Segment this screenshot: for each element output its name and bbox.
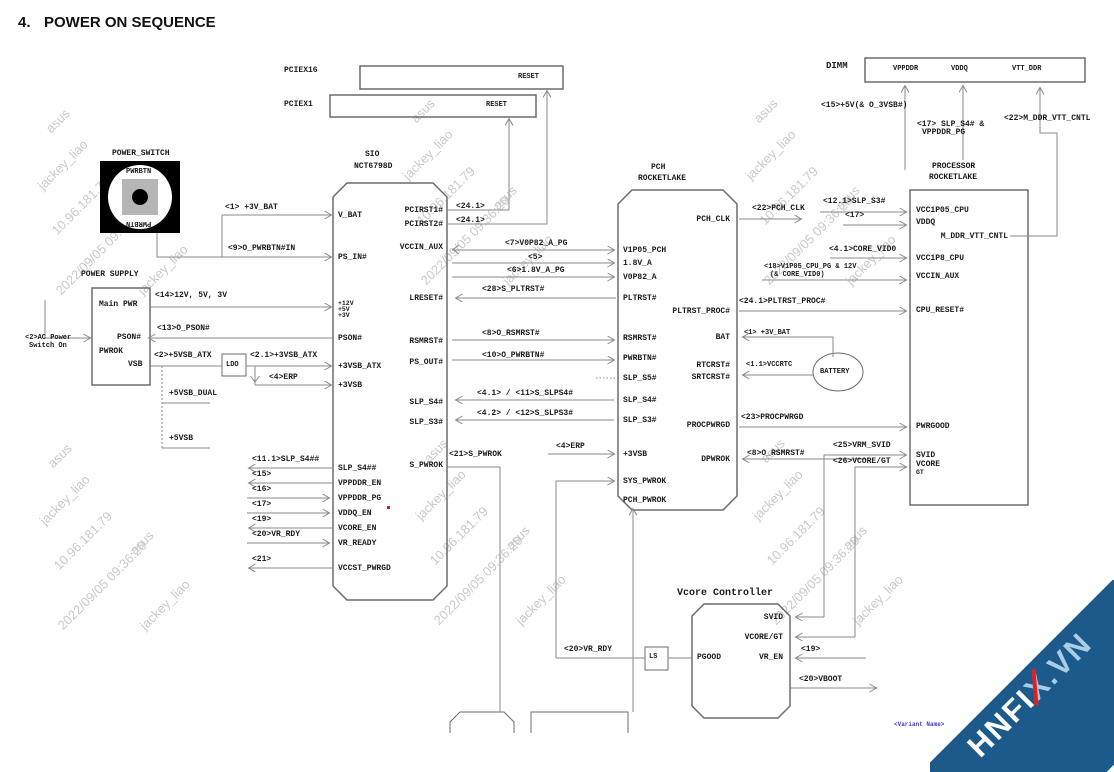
pch-pin-dpwrok: DPWROK	[701, 455, 730, 464]
sio-pin-pcirst1: PCIRST1#	[405, 206, 443, 215]
pch-pin-pch-clk: PCH_CLK	[696, 215, 730, 224]
sio-pin-slp-s4: SLP_S4#	[409, 398, 443, 407]
cpu-pin-vcc1p8: VCC1P8_CPU	[916, 254, 964, 263]
signal-5vsb: +5VSB	[169, 434, 193, 443]
psu-pin-pwrok: PWROK	[99, 347, 123, 356]
cpu-pin-cpu-reset: CPU_RESET#	[916, 306, 964, 315]
signal-ac-power-2: Switch On	[29, 342, 67, 350]
cpu-pin-vddq: VDDQ	[916, 218, 935, 227]
dimm-label: DIMM	[826, 61, 848, 71]
ls-label: LS	[649, 653, 657, 661]
pch-pin-sys-pwrok: SYS_PWROK	[623, 477, 666, 486]
pch-pin-v1p05: V1P05_PCH	[623, 246, 666, 255]
signal-core-vid0: <4.1>CORE_VID0	[829, 245, 896, 254]
signal-v0p82-pg: <7>V0P82_A_PG	[505, 239, 567, 248]
pch-pin-procpwrgd: PROCPWRGD	[687, 421, 730, 430]
signal-o-pson: <13>O_PSON#	[157, 324, 210, 333]
section-number: 4.	[18, 14, 31, 31]
red-marker	[387, 506, 390, 509]
sio-pin-s-pwrok: S_PWROK	[409, 461, 443, 470]
signal-main-rails: <14>12V, 5V, 3V	[155, 291, 227, 300]
vcore-title: Vcore Controller	[677, 588, 773, 600]
pch-pin-slp-s3: SLP_S3#	[623, 416, 657, 425]
signal-ref19: <19>	[252, 515, 271, 524]
vcore-pin-pgood: PGOOD	[697, 653, 721, 662]
signal-slp-s4dd: <11.1>SLP_S4##	[252, 455, 319, 464]
signal-s-pltrst: <28>S_PLTRST#	[482, 285, 544, 294]
signal-pltrst-proc: <24.1>PLTRST_PROC#	[739, 297, 825, 306]
signal-5vsb-atx: <2>+5VSB_ATX	[154, 351, 212, 360]
signal-vcore-gt: <26>VCORE/GT	[833, 457, 891, 466]
dimm-pin-vddq: VDDQ	[951, 65, 968, 73]
pch-pin-pwrbtn: PWRBTN#	[623, 354, 657, 363]
sio-pin-pcirst2: PCIRST2#	[405, 220, 443, 229]
signal-ref5: <5>	[528, 253, 542, 262]
battery-label: BATTERY	[820, 368, 849, 376]
pch-subtitle: ROCKETLAKE	[638, 174, 686, 183]
power-switch-button	[132, 189, 148, 205]
page-title: POWER ON SEQUENCE	[44, 14, 216, 31]
pch-pin-rsmrst: RSMRST#	[623, 334, 657, 343]
cpu-pin-pwrgood: PWRGOOD	[916, 422, 950, 431]
pciex16-reset-pin: RESET	[518, 73, 539, 81]
sio-pin-vr-ready: VR_READY	[338, 539, 376, 548]
signal-s-slps4: <4.1> / <11>S_SLPS4#	[477, 389, 573, 398]
sio-pin-3vsb: +3VSB	[338, 381, 362, 390]
vcore-pin-vr-en: VR_EN	[759, 653, 783, 662]
sio-pin-lreset: LRESET#	[409, 294, 443, 303]
signal-3v-bat: <1> +3V_BAT	[225, 203, 278, 212]
signal-cpu-pg-2: (& CORE_VID0)	[770, 271, 825, 279]
pch-pin-srtcrst: SRTCRST#	[692, 373, 730, 382]
pch-pin-bat: BAT	[716, 333, 730, 342]
cpu-pin-mddr-vtt-cntl: M_DDR_VTT_CNTL	[941, 232, 1008, 241]
pciex1-reset-pin: RESET	[486, 101, 507, 109]
sio-pin-slp-s4dd: SLP_S4##	[338, 464, 376, 473]
signal-mddr-vtt-cntl: <22>M_DDR_VTT_CNTL	[1004, 114, 1090, 123]
sio-pin-3v: +3V	[338, 312, 350, 319]
signal-dimm-vddq-2: VPPDDR_PG	[922, 128, 965, 137]
sio-pin-v-bat: V_BAT	[338, 211, 362, 220]
signal-vr-rdy: <20>VR_RDY	[252, 530, 300, 539]
signal-dimm-5v: <15>+5V(& O_3VSB#)	[821, 101, 907, 110]
cpu-title: PROCESSOR	[932, 162, 975, 171]
wires	[45, 86, 1057, 712]
sio-pin-3vsb-atx: +3VSB_ATX	[338, 362, 381, 371]
pciex1-label: PCIEX1	[284, 100, 313, 109]
power-switch-title: POWER_SWITCH	[112, 149, 170, 158]
cpu-pin-vcc1p05: VCC1P05_CPU	[916, 206, 969, 215]
signal-pcirst2-ref: <24.1>	[456, 216, 485, 225]
pch-title: PCH	[651, 163, 665, 172]
sio-pin-ps-out: PS_OUT#	[409, 358, 443, 367]
vcore-pin-svid: SVID	[764, 613, 783, 622]
ldo-label: LDO	[226, 361, 239, 369]
signal-s-pwrok: <21>S_PWROK	[449, 450, 502, 459]
dimm-pin-vtt-ddr: VTT_DDR	[1012, 65, 1041, 73]
sio-part-number: NCT6798D	[354, 162, 392, 171]
signal-erp-pch: <4>ERP	[556, 442, 585, 451]
pch-pin-pltrst-proc: PLTRST_PROC#	[672, 307, 730, 316]
signal-ref17-cpu: <17>	[845, 211, 864, 220]
pch-pin-pltrst: PLTRST#	[623, 294, 657, 303]
signal-o-pwrbtn: <10>O_PWRBTN#	[482, 351, 544, 360]
signal-o-rsmrst: <8>O_RSMRST#	[482, 329, 540, 338]
signal-ref16: <16>	[252, 485, 271, 494]
sio-pin-vcore-en: VCORE_EN	[338, 524, 376, 533]
psu-pin-vsb: VSB	[128, 360, 142, 369]
power-on-sequence-schematic: asusjackey_liao10.96.181.792022/09/05 09…	[0, 0, 1114, 772]
power-switch-btn-label: PWRBTN	[126, 168, 151, 176]
pch-pin-slp-s4: SLP_S4#	[623, 396, 657, 405]
pch-pin-pch-pwrok: PCH_PWROK	[623, 496, 666, 505]
sio-title: SIO	[365, 150, 379, 159]
signal-vboot: <20>VBOOT	[799, 675, 842, 684]
signal-5vsb-dual: +5VSB_DUAL	[169, 389, 217, 398]
cpu-subtitle: ROCKETLAKE	[929, 173, 977, 182]
hnfix-banner: HNFIX.VN	[930, 580, 1114, 772]
pch-pin-v0p82: V0P82_A	[623, 273, 657, 282]
pch-pin-slp-s5: SLP_S5#	[623, 374, 657, 383]
signal-procpwrgd: <23>PROCPWRGD	[741, 413, 803, 422]
sio-pin-rsmrst: RSMRST#	[409, 337, 443, 346]
pch-pin-rtcrst: RTCRST#	[696, 361, 730, 370]
signal-vr-en: <19>	[801, 645, 820, 654]
signal-s-slps3: <4.2> / <12>S_SLPS3#	[477, 409, 573, 418]
signal-cpu-pg-1: <18>V1P05_CPU_PG & 12V	[764, 263, 856, 271]
signal-pcirst1-ref: <24.1>	[456, 202, 485, 211]
signal-pwrbtn-in: <9>O_PWRBTN#IN	[228, 244, 295, 253]
cpu-pin-vccin-aux: VCCIN_AUX	[916, 272, 959, 281]
signal-pch-clk: <22>PCH_CLK	[752, 204, 805, 213]
pch-pin-3vsb: +3VSB	[623, 450, 647, 459]
signal-o-rsmrst-dpwrok: <8>O_RSMRST#	[747, 449, 805, 458]
sio-pin-ps-in: PS_IN#	[338, 253, 367, 262]
signal-ref17: <17>	[252, 500, 271, 509]
sio-pin-vppddr-pg: VPPDDR_PG	[338, 494, 381, 503]
pch-pin-1v8a: 1.8V_A	[623, 259, 652, 268]
psu-pin-pson: PSON#	[117, 333, 141, 342]
sio-pin-slp-s3: SLP_S3#	[409, 418, 443, 427]
signal-ref15: <15>	[252, 470, 271, 479]
signal-vrm-svid: <25>VRM_SVID	[833, 441, 891, 450]
sio-pin-vccin-aux: VCCIN_AUX	[400, 243, 443, 252]
signal-erp: <4>ERP	[269, 373, 298, 382]
partial-block-2	[531, 712, 628, 733]
cpu-pin-vcore: VCORE	[916, 460, 940, 469]
signal-slp-s3-cpu: <12.1>SLP_S3#	[823, 197, 885, 206]
sio-pin-vccst-pwrgd: VCCST_PWRGD	[338, 564, 391, 573]
signal-bat: <1> +3V_BAT	[744, 329, 790, 337]
power-supply-title: POWER SUPPLY	[81, 270, 139, 279]
signal-ref21: <21>	[252, 555, 271, 564]
power-switch-btn-label-mirrored: PWRBTN	[126, 219, 151, 227]
pciex16-label: PCIEX16	[284, 66, 318, 75]
signal-vccrtc: <1.1>VCCRTC	[746, 361, 792, 369]
sio-pin-vddq-en: VDDQ_EN	[338, 509, 372, 518]
psu-pin-main-pwr: Main PWR	[99, 300, 137, 309]
signal-vr-rdy-ls: <20>VR_RDY	[564, 645, 612, 654]
signal-3vsb-atx: <2.1>+3VSB_ATX	[250, 351, 317, 360]
sio-pin-vppddr-en: VPPDDR_EN	[338, 479, 381, 488]
cpu-pin-gt: GT	[916, 469, 924, 476]
dimm-pin-vppddr: VPPDDR	[893, 65, 918, 73]
signal-1v8-pg: <6>1.8V_A_PG	[507, 266, 565, 275]
sio-pin-pson: PSON#	[338, 334, 362, 343]
partial-block-1	[450, 712, 514, 733]
cpu-pin-svid: SVID	[916, 451, 935, 460]
vcore-pin-vcore-gt: VCORE/GT	[745, 633, 783, 642]
signal-ac-power-1: <2>AC Power	[25, 334, 71, 342]
